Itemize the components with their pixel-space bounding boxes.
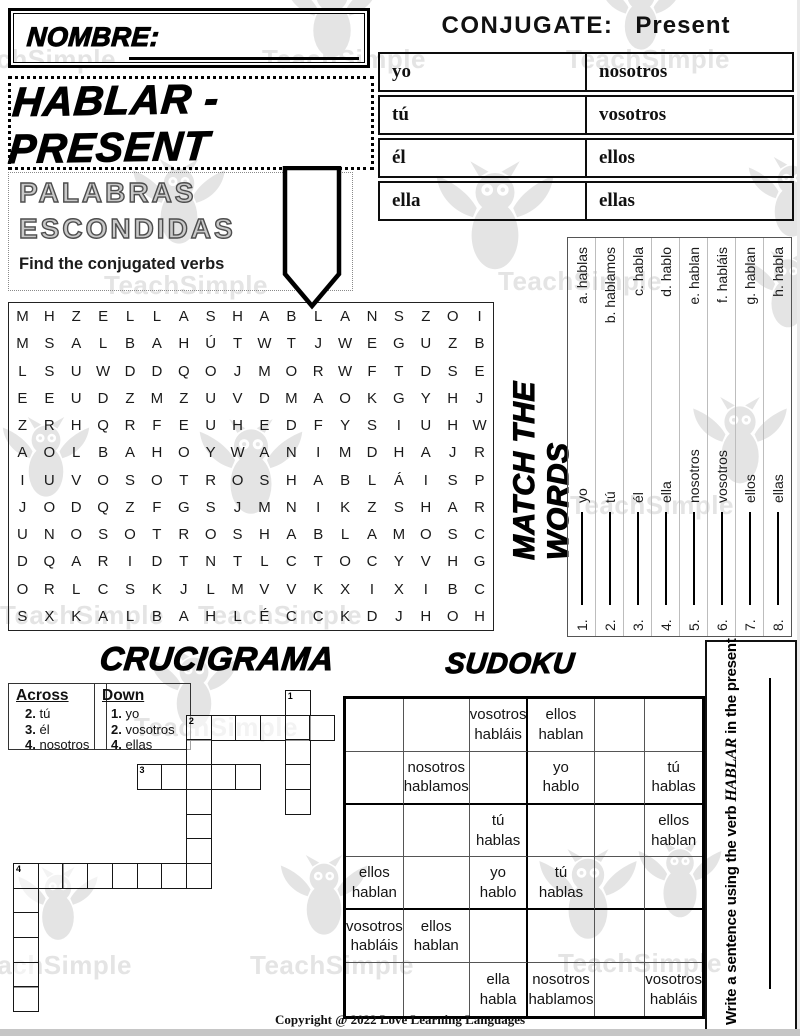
match-letter-option: e. hablan bbox=[686, 247, 702, 305]
word-search-letter: P bbox=[466, 467, 493, 494]
sudoku-cell[interactable] bbox=[470, 752, 529, 805]
word-search-letter: Z bbox=[63, 303, 90, 330]
match-answer-blank[interactable] bbox=[637, 512, 639, 605]
word-search-letter: X bbox=[385, 576, 412, 603]
crossword-cell[interactable] bbox=[161, 863, 187, 889]
match-item-strip[interactable]: 4.ellad. hablo bbox=[651, 238, 679, 636]
word-search-letter: R bbox=[305, 358, 332, 385]
word-search-letter: U bbox=[412, 412, 439, 439]
crossword-cell[interactable]: 1 bbox=[285, 690, 311, 716]
word-search-letter: L bbox=[117, 303, 144, 330]
word-search-letter: V bbox=[224, 385, 251, 412]
word-search-letter: J bbox=[385, 603, 412, 630]
crossword-cell[interactable] bbox=[285, 715, 311, 741]
word-search-letter: H bbox=[224, 303, 251, 330]
match-item-strip[interactable]: 5.nosotrose. hablan bbox=[679, 238, 707, 636]
match-pronoun: ella bbox=[658, 481, 674, 503]
match-answer-blank[interactable] bbox=[721, 512, 723, 605]
match-pronoun: él bbox=[630, 492, 646, 503]
word-search-letter: O bbox=[197, 358, 224, 385]
match-item-number: 3. bbox=[630, 605, 646, 634]
word-search-letter: H bbox=[439, 412, 466, 439]
match-item-strip[interactable]: 2.túb. hablamos bbox=[595, 238, 623, 636]
word-search-letter: S bbox=[197, 494, 224, 521]
sudoku-cell[interactable]: elloshablan bbox=[528, 699, 594, 752]
word-search-letter: Z bbox=[359, 494, 386, 521]
match-the-words-table: 1.yoa. hablas2.túb. hablamos3.élc. habla… bbox=[567, 237, 792, 637]
word-search-letter: H bbox=[412, 494, 439, 521]
sudoku-cell[interactable] bbox=[470, 910, 529, 963]
word-search-letter: R bbox=[36, 576, 63, 603]
word-search-letter: U bbox=[9, 521, 36, 548]
match-item-number: 5. bbox=[686, 605, 702, 634]
sudoku-cell[interactable]: ellahabla bbox=[470, 963, 529, 1016]
sudoku-cell[interactable] bbox=[346, 699, 404, 752]
match-answer-blank[interactable] bbox=[609, 512, 611, 605]
match-item-number: 7. bbox=[742, 605, 758, 634]
match-item-number: 4. bbox=[658, 605, 674, 634]
word-search-letter: S bbox=[251, 467, 278, 494]
conjugate-cell-tú[interactable]: tú bbox=[380, 97, 587, 133]
word-search-letter: A bbox=[170, 603, 197, 630]
conjugate-cell-ella[interactable]: ella bbox=[380, 183, 587, 219]
word-search-letter: I bbox=[305, 494, 332, 521]
word-search-letter: G bbox=[466, 548, 493, 575]
crossword-cell[interactable] bbox=[186, 789, 212, 815]
word-search-letter: B bbox=[439, 576, 466, 603]
crossword-cell[interactable] bbox=[137, 863, 163, 889]
word-search-letter: I bbox=[466, 303, 493, 330]
word-search-letter: D bbox=[63, 494, 90, 521]
crossword-cell[interactable] bbox=[235, 715, 261, 741]
crossword-cell-number: 4 bbox=[16, 864, 21, 874]
sudoku-cell[interactable]: nosotroshablamos bbox=[528, 963, 594, 1016]
sudoku-title: SUDOKU bbox=[423, 648, 596, 681]
word-search-letter: W bbox=[332, 330, 359, 357]
word-search-letter: Á bbox=[385, 467, 412, 494]
word-search-letter: H bbox=[63, 412, 90, 439]
word-search-letter: N bbox=[278, 439, 305, 466]
word-search-letter: B bbox=[332, 467, 359, 494]
word-search-letter: X bbox=[332, 576, 359, 603]
sentence-post: in the present bbox=[723, 638, 740, 734]
sudoku-cell-text: habláis bbox=[351, 936, 399, 956]
sudoku-cell-text: vosotros bbox=[470, 705, 527, 725]
sudoku-cell[interactable] bbox=[404, 805, 470, 858]
word-search-letter: S bbox=[439, 521, 466, 548]
match-item-number: 8. bbox=[770, 605, 786, 634]
name-blank-line[interactable] bbox=[129, 57, 359, 60]
match-item-number: 2. bbox=[602, 605, 618, 634]
word-search-letter: D bbox=[278, 412, 305, 439]
word-search-letter: M bbox=[385, 521, 412, 548]
word-search-letter: U bbox=[197, 385, 224, 412]
conjugate-row: élellos bbox=[378, 138, 794, 178]
word-search-letter: S bbox=[224, 521, 251, 548]
word-search-letter: O bbox=[36, 439, 63, 466]
word-search-letter: N bbox=[197, 548, 224, 575]
match-pronoun: yo bbox=[574, 488, 590, 503]
match-pronoun: ellas bbox=[770, 474, 786, 503]
word-search-letter: Z bbox=[412, 303, 439, 330]
word-search-letter: A bbox=[90, 603, 117, 630]
sudoku-cell-text: ellos bbox=[658, 811, 689, 831]
conjugate-title: CONJUGATE:Present bbox=[378, 12, 794, 40]
word-search-letter: I bbox=[385, 412, 412, 439]
crossword-cell[interactable] bbox=[13, 986, 39, 1012]
crossword-cell[interactable] bbox=[235, 764, 261, 790]
word-search-letter: I bbox=[412, 467, 439, 494]
word-search-letter: C bbox=[90, 576, 117, 603]
sudoku-cell[interactable]: túhablas bbox=[645, 752, 702, 805]
word-search-letter: L bbox=[359, 467, 386, 494]
word-search-letter: H bbox=[439, 548, 466, 575]
word-search-letter: O bbox=[143, 467, 170, 494]
conjugate-cell-él[interactable]: él bbox=[380, 140, 587, 176]
crossword-cell[interactable] bbox=[211, 764, 237, 790]
conjugate-cell-ellos[interactable]: ellos bbox=[587, 140, 792, 176]
crossword-cell[interactable] bbox=[260, 715, 286, 741]
word-search-letter: Q bbox=[170, 358, 197, 385]
word-search-letter: É bbox=[251, 603, 278, 630]
name-box: NOMBRE: bbox=[8, 8, 370, 68]
word-search-letter: Z bbox=[117, 494, 144, 521]
copyright-text: Copyright @ 2022 Love Learning Languages bbox=[0, 1012, 800, 1028]
crossword-cell[interactable] bbox=[186, 764, 212, 790]
match-answer-blank[interactable] bbox=[749, 512, 751, 605]
sudoku-cell[interactable]: vosotroshabláis bbox=[470, 699, 529, 752]
match-item-strip[interactable]: 3.élc. habla bbox=[623, 238, 651, 636]
word-search-letter: S bbox=[439, 467, 466, 494]
word-search-letter: I bbox=[412, 576, 439, 603]
word-search-letter: S bbox=[359, 412, 386, 439]
word-search-letter: U bbox=[63, 358, 90, 385]
word-search-letter: T bbox=[224, 330, 251, 357]
sudoku-cell[interactable] bbox=[595, 857, 646, 910]
word-search-letter: D bbox=[143, 548, 170, 575]
word-search-letter: T bbox=[170, 548, 197, 575]
crossword-cell[interactable] bbox=[211, 715, 237, 741]
sudoku-cell[interactable]: vosotroshabláis bbox=[645, 963, 702, 1016]
crossword-cell[interactable]: 4 bbox=[13, 863, 39, 889]
word-search-grid: MHZELLASHABLANSZOIMSALBAHÚTWTJWEGUZBLSUW… bbox=[8, 302, 494, 631]
word-search-letter: M bbox=[224, 576, 251, 603]
word-search-letter: N bbox=[278, 494, 305, 521]
match-letter-option: d. hablo bbox=[658, 247, 674, 297]
word-search-letter: J bbox=[439, 439, 466, 466]
match-answer-blank[interactable] bbox=[665, 512, 667, 605]
match-item-line: 6.vosotrosf. habláis bbox=[708, 238, 735, 634]
word-search-letter: A bbox=[305, 467, 332, 494]
crossword-cell[interactable] bbox=[87, 863, 113, 889]
sudoku-cell-text: vosotros bbox=[645, 970, 702, 990]
sudoku-cell[interactable] bbox=[528, 805, 594, 858]
sudoku-cell[interactable]: elloshablan bbox=[404, 910, 470, 963]
sudoku-cell[interactable] bbox=[645, 699, 702, 752]
sudoku-cell[interactable] bbox=[404, 963, 470, 1016]
word-search-letter: B bbox=[305, 521, 332, 548]
word-search-letter: U bbox=[197, 412, 224, 439]
sudoku-cell-text: tú bbox=[555, 863, 568, 883]
crossword-cell[interactable] bbox=[62, 863, 88, 889]
word-search-letter: D bbox=[9, 548, 36, 575]
sudoku-cell-text: ellos bbox=[421, 917, 452, 937]
down-arrow-banner bbox=[282, 166, 342, 310]
match-item-strip[interactable]: 1.yoa. hablas bbox=[568, 238, 595, 636]
word-search-letter: M bbox=[143, 385, 170, 412]
word-search-letter: D bbox=[117, 358, 144, 385]
word-search-letter: B bbox=[466, 330, 493, 357]
word-search-letter: O bbox=[117, 521, 144, 548]
word-search-letter: S bbox=[117, 467, 144, 494]
word-search-letter: Z bbox=[170, 385, 197, 412]
word-search-letter: R bbox=[117, 412, 144, 439]
sudoku-grid: vosotroshabláiselloshablannosotroshablam… bbox=[343, 696, 705, 1019]
word-search-letter: O bbox=[197, 521, 224, 548]
sudoku-cell[interactable]: vosotroshabláis bbox=[346, 910, 404, 963]
sudoku-cell[interactable] bbox=[346, 752, 404, 805]
sudoku-cell-text: hablamos bbox=[404, 777, 469, 797]
word-search-letter: L bbox=[63, 576, 90, 603]
crossword-cell[interactable] bbox=[285, 789, 311, 815]
word-search-letter: S bbox=[117, 576, 144, 603]
crossword-cell-number: 3 bbox=[140, 765, 145, 775]
match-the-words-title: MATCH THE WORDS bbox=[508, 302, 552, 560]
word-search-letter: L bbox=[9, 358, 36, 385]
word-search-letter: H bbox=[170, 330, 197, 357]
sentence-pre: Write a sentence using the verb bbox=[723, 806, 740, 1025]
sudoku-cell[interactable] bbox=[346, 805, 404, 858]
main-title-box: HABLAR - PRESENT bbox=[8, 76, 374, 170]
crossword-cell[interactable] bbox=[13, 937, 39, 963]
word-search-letter: T bbox=[305, 548, 332, 575]
crossword-cell[interactable] bbox=[13, 888, 39, 914]
sudoku-cell-text: habláis bbox=[650, 990, 698, 1010]
crossword-cell[interactable] bbox=[186, 739, 212, 765]
sudoku-cell[interactable]: yohablo bbox=[528, 752, 594, 805]
sudoku-cell[interactable] bbox=[645, 857, 702, 910]
sudoku-cell[interactable] bbox=[595, 805, 646, 858]
word-search-letter: O bbox=[439, 603, 466, 630]
sudoku-cell[interactable]: túhablas bbox=[470, 805, 529, 858]
sudoku-cell[interactable] bbox=[404, 699, 470, 752]
conjugate-cell-nosotros[interactable]: nosotros bbox=[587, 54, 792, 90]
sudoku-cell-text: habláis bbox=[474, 725, 522, 745]
word-search-letter: Y bbox=[385, 548, 412, 575]
word-search-letter: T bbox=[278, 330, 305, 357]
word-search-letter: Q bbox=[90, 412, 117, 439]
word-search-letter: O bbox=[170, 439, 197, 466]
conjugate-cell-vosotros[interactable]: vosotros bbox=[587, 97, 792, 133]
word-search-letter: O bbox=[224, 467, 251, 494]
word-search-letter: J bbox=[224, 358, 251, 385]
word-search-letter: C bbox=[278, 603, 305, 630]
crossword-cell[interactable] bbox=[112, 863, 138, 889]
crossword-cell[interactable] bbox=[38, 863, 64, 889]
crossword-cell-number: 1 bbox=[288, 691, 293, 701]
crossword-cell-number: 2 bbox=[189, 716, 194, 726]
match-letter-option: a. hablas bbox=[574, 247, 590, 304]
match-item-strip[interactable]: 6.vosotrosf. habláis bbox=[707, 238, 735, 636]
sudoku-cell[interactable] bbox=[346, 963, 404, 1016]
sudoku-cell-text: hablo bbox=[543, 777, 580, 797]
word-search-letter: X bbox=[36, 603, 63, 630]
word-search-letter: L bbox=[332, 521, 359, 548]
word-search-letter: N bbox=[36, 521, 63, 548]
word-search-letter: K bbox=[359, 385, 386, 412]
word-search-letter: B bbox=[143, 603, 170, 630]
word-search-letter: M bbox=[251, 494, 278, 521]
crossword-cell[interactable] bbox=[309, 715, 335, 741]
sudoku-cell[interactable] bbox=[528, 910, 594, 963]
word-search-letter: S bbox=[36, 330, 63, 357]
page-bottom-edge bbox=[0, 1029, 800, 1036]
word-search-letter: H bbox=[197, 603, 224, 630]
crossword-cell[interactable] bbox=[285, 764, 311, 790]
word-search-letter: H bbox=[278, 467, 305, 494]
match-pronoun: ellos bbox=[742, 474, 758, 503]
crossword-cell[interactable] bbox=[186, 863, 212, 889]
conjugate-tense: Present bbox=[635, 12, 730, 39]
sudoku-cell-text: habla bbox=[480, 990, 517, 1010]
match-letter-option: h. habla bbox=[770, 247, 786, 297]
conjugate-row: ellaellas bbox=[378, 181, 794, 221]
crossword-cell[interactable] bbox=[186, 838, 212, 864]
conjugate-cell-yo[interactable]: yo bbox=[380, 54, 587, 90]
word-search-letter: Y bbox=[197, 439, 224, 466]
word-search-letter: H bbox=[412, 603, 439, 630]
word-search-letter: A bbox=[439, 494, 466, 521]
sudoku-cell[interactable]: nosotroshablamos bbox=[404, 752, 470, 805]
sentence-verb: HABLAR bbox=[723, 738, 740, 802]
word-search-letter: H bbox=[439, 385, 466, 412]
sudoku-cell-text: hablan bbox=[352, 883, 397, 903]
match-item-strip[interactable]: 7.ellosg. hablan bbox=[735, 238, 763, 636]
word-search-letter: S bbox=[90, 521, 117, 548]
word-search-letter: R bbox=[197, 467, 224, 494]
crossword-cell[interactable] bbox=[161, 764, 187, 790]
sudoku-cell-text: ellos bbox=[546, 705, 577, 725]
word-search-letter: F bbox=[305, 412, 332, 439]
sudoku-cell[interactable] bbox=[595, 699, 646, 752]
word-search-letter: S bbox=[385, 494, 412, 521]
conjugate-row: túvosotros bbox=[378, 95, 794, 135]
word-search-letter: B bbox=[90, 439, 117, 466]
word-search-letter: C bbox=[305, 603, 332, 630]
match-answer-blank[interactable] bbox=[777, 512, 779, 605]
crossword-cell[interactable] bbox=[186, 814, 212, 840]
sudoku-cell[interactable]: túhablas bbox=[528, 857, 594, 910]
sudoku-cell-text: hablan bbox=[651, 831, 696, 851]
word-search-letter: C bbox=[466, 576, 493, 603]
word-search-letter: C bbox=[278, 548, 305, 575]
name-label: NOMBRE: bbox=[26, 22, 161, 53]
word-search-letter: Ú bbox=[197, 330, 224, 357]
sudoku-cell-text: nosotros bbox=[407, 758, 465, 778]
match-item-line: 3.élc. habla bbox=[624, 238, 651, 634]
word-search-letter: O bbox=[9, 576, 36, 603]
sudoku-cell-text: ella bbox=[486, 970, 509, 990]
match-item-strip[interactable]: 8.ellash. habla bbox=[763, 238, 791, 636]
word-search-letter: Z bbox=[439, 330, 466, 357]
main-title: HABLAR - PRESENT bbox=[7, 73, 376, 173]
word-search-letter: D bbox=[251, 385, 278, 412]
match-answer-blank[interactable] bbox=[581, 512, 583, 605]
word-search-letter: H bbox=[224, 412, 251, 439]
word-search-letter: D bbox=[359, 603, 386, 630]
sudoku-cell-text: ellos bbox=[359, 863, 390, 883]
sudoku-cell[interactable]: yohablo bbox=[470, 857, 529, 910]
match-answer-blank[interactable] bbox=[693, 512, 695, 605]
sudoku-cell[interactable] bbox=[404, 857, 470, 910]
word-search-letter: M bbox=[332, 439, 359, 466]
sudoku-cell[interactable] bbox=[595, 963, 646, 1016]
conjugate-table: yonosotrostúvosotrosélellosellaellas bbox=[378, 52, 794, 224]
sudoku-cell-text: hablan bbox=[538, 725, 583, 745]
word-search-letter: V bbox=[278, 576, 305, 603]
word-search-letter: L bbox=[251, 548, 278, 575]
word-search-letter: H bbox=[36, 303, 63, 330]
word-search-letter: W bbox=[251, 330, 278, 357]
word-search-letter: A bbox=[251, 439, 278, 466]
sudoku-cell[interactable] bbox=[645, 910, 702, 963]
word-search-letter: O bbox=[36, 494, 63, 521]
crossword-cell[interactable]: 2 bbox=[186, 715, 212, 741]
word-search-letter: I bbox=[359, 576, 386, 603]
word-search-letter: I bbox=[9, 467, 36, 494]
word-search-letter: S bbox=[36, 358, 63, 385]
word-search-letter: E bbox=[36, 385, 63, 412]
word-search-letter: G bbox=[170, 494, 197, 521]
word-search-letter: F bbox=[143, 494, 170, 521]
sudoku-cell[interactable] bbox=[595, 910, 646, 963]
word-search-letter: B bbox=[117, 330, 144, 357]
word-search-letter: Y bbox=[332, 412, 359, 439]
sudoku-cell[interactable]: elloshablan bbox=[346, 857, 404, 910]
conjugate-cell-ellas[interactable]: ellas bbox=[587, 183, 792, 219]
word-search-letter: A bbox=[117, 439, 144, 466]
match-item-line: 8.ellash. habla bbox=[764, 238, 791, 634]
write-sentence-box: Write a sentence using the verb HABLAR i… bbox=[705, 640, 797, 1032]
word-search-letter: N bbox=[359, 303, 386, 330]
sudoku-cell[interactable] bbox=[595, 752, 646, 805]
crossword-cell[interactable]: 3 bbox=[137, 764, 163, 790]
word-search-letter: Y bbox=[412, 385, 439, 412]
word-search-letter: A bbox=[305, 385, 332, 412]
match-item-line: 1.yoa. hablas bbox=[568, 238, 595, 634]
word-search-letter: I bbox=[117, 548, 144, 575]
word-search-letter: S bbox=[385, 303, 412, 330]
sudoku-cell[interactable]: elloshablan bbox=[645, 805, 702, 858]
word-search-letter: T bbox=[224, 548, 251, 575]
word-search-letter: H bbox=[143, 439, 170, 466]
word-search-letter: G bbox=[385, 385, 412, 412]
word-search-letter: W bbox=[224, 439, 251, 466]
word-search-letter: L bbox=[90, 330, 117, 357]
word-search-letter: E bbox=[9, 385, 36, 412]
word-search-letter: D bbox=[143, 358, 170, 385]
crossword-cell[interactable] bbox=[13, 912, 39, 938]
crucigrama-title: CRUCIGRAMA bbox=[98, 640, 302, 678]
word-search-letter: Z bbox=[9, 412, 36, 439]
palabras-line2: ESCONDIDAS bbox=[19, 213, 236, 245]
crossword-cell[interactable] bbox=[285, 739, 311, 765]
match-letter-option: c. habla bbox=[630, 247, 646, 296]
crossword-cell[interactable] bbox=[13, 962, 39, 988]
sudoku-cell-text: hablas bbox=[652, 777, 696, 797]
word-search-letter: M bbox=[9, 303, 36, 330]
sentence-blank-line[interactable] bbox=[769, 678, 771, 989]
